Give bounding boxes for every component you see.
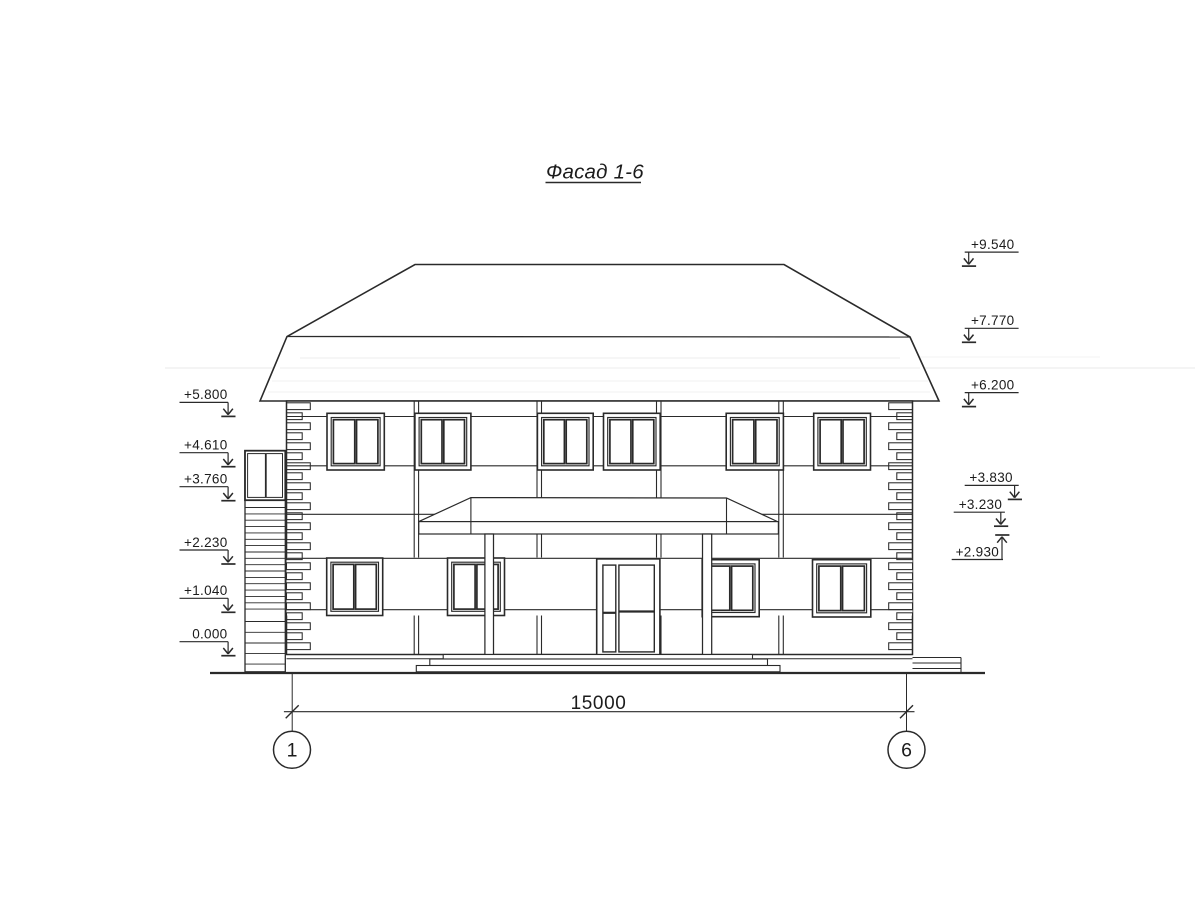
svg-text:+4.610: +4.610 bbox=[184, 438, 227, 453]
svg-text:+9.540: +9.540 bbox=[971, 237, 1014, 252]
svg-text:+3.760: +3.760 bbox=[184, 472, 227, 487]
svg-text:1: 1 bbox=[287, 740, 298, 762]
svg-text:+2.930: +2.930 bbox=[956, 544, 999, 559]
svg-text:Фасад 1-6: Фасад 1-6 bbox=[546, 161, 644, 184]
svg-text:6: 6 bbox=[901, 740, 912, 762]
svg-text:+3.830: +3.830 bbox=[969, 470, 1012, 485]
svg-text:+7.770: +7.770 bbox=[971, 313, 1014, 328]
svg-text:+2.230: +2.230 bbox=[184, 535, 227, 550]
svg-text:0.000: 0.000 bbox=[192, 627, 227, 642]
svg-text:+6.200: +6.200 bbox=[971, 377, 1014, 392]
svg-text:+5.800: +5.800 bbox=[184, 387, 227, 402]
svg-text:+1.040: +1.040 bbox=[184, 583, 227, 598]
svg-text:15000: 15000 bbox=[571, 693, 627, 714]
svg-text:+3.230: +3.230 bbox=[959, 497, 1002, 512]
